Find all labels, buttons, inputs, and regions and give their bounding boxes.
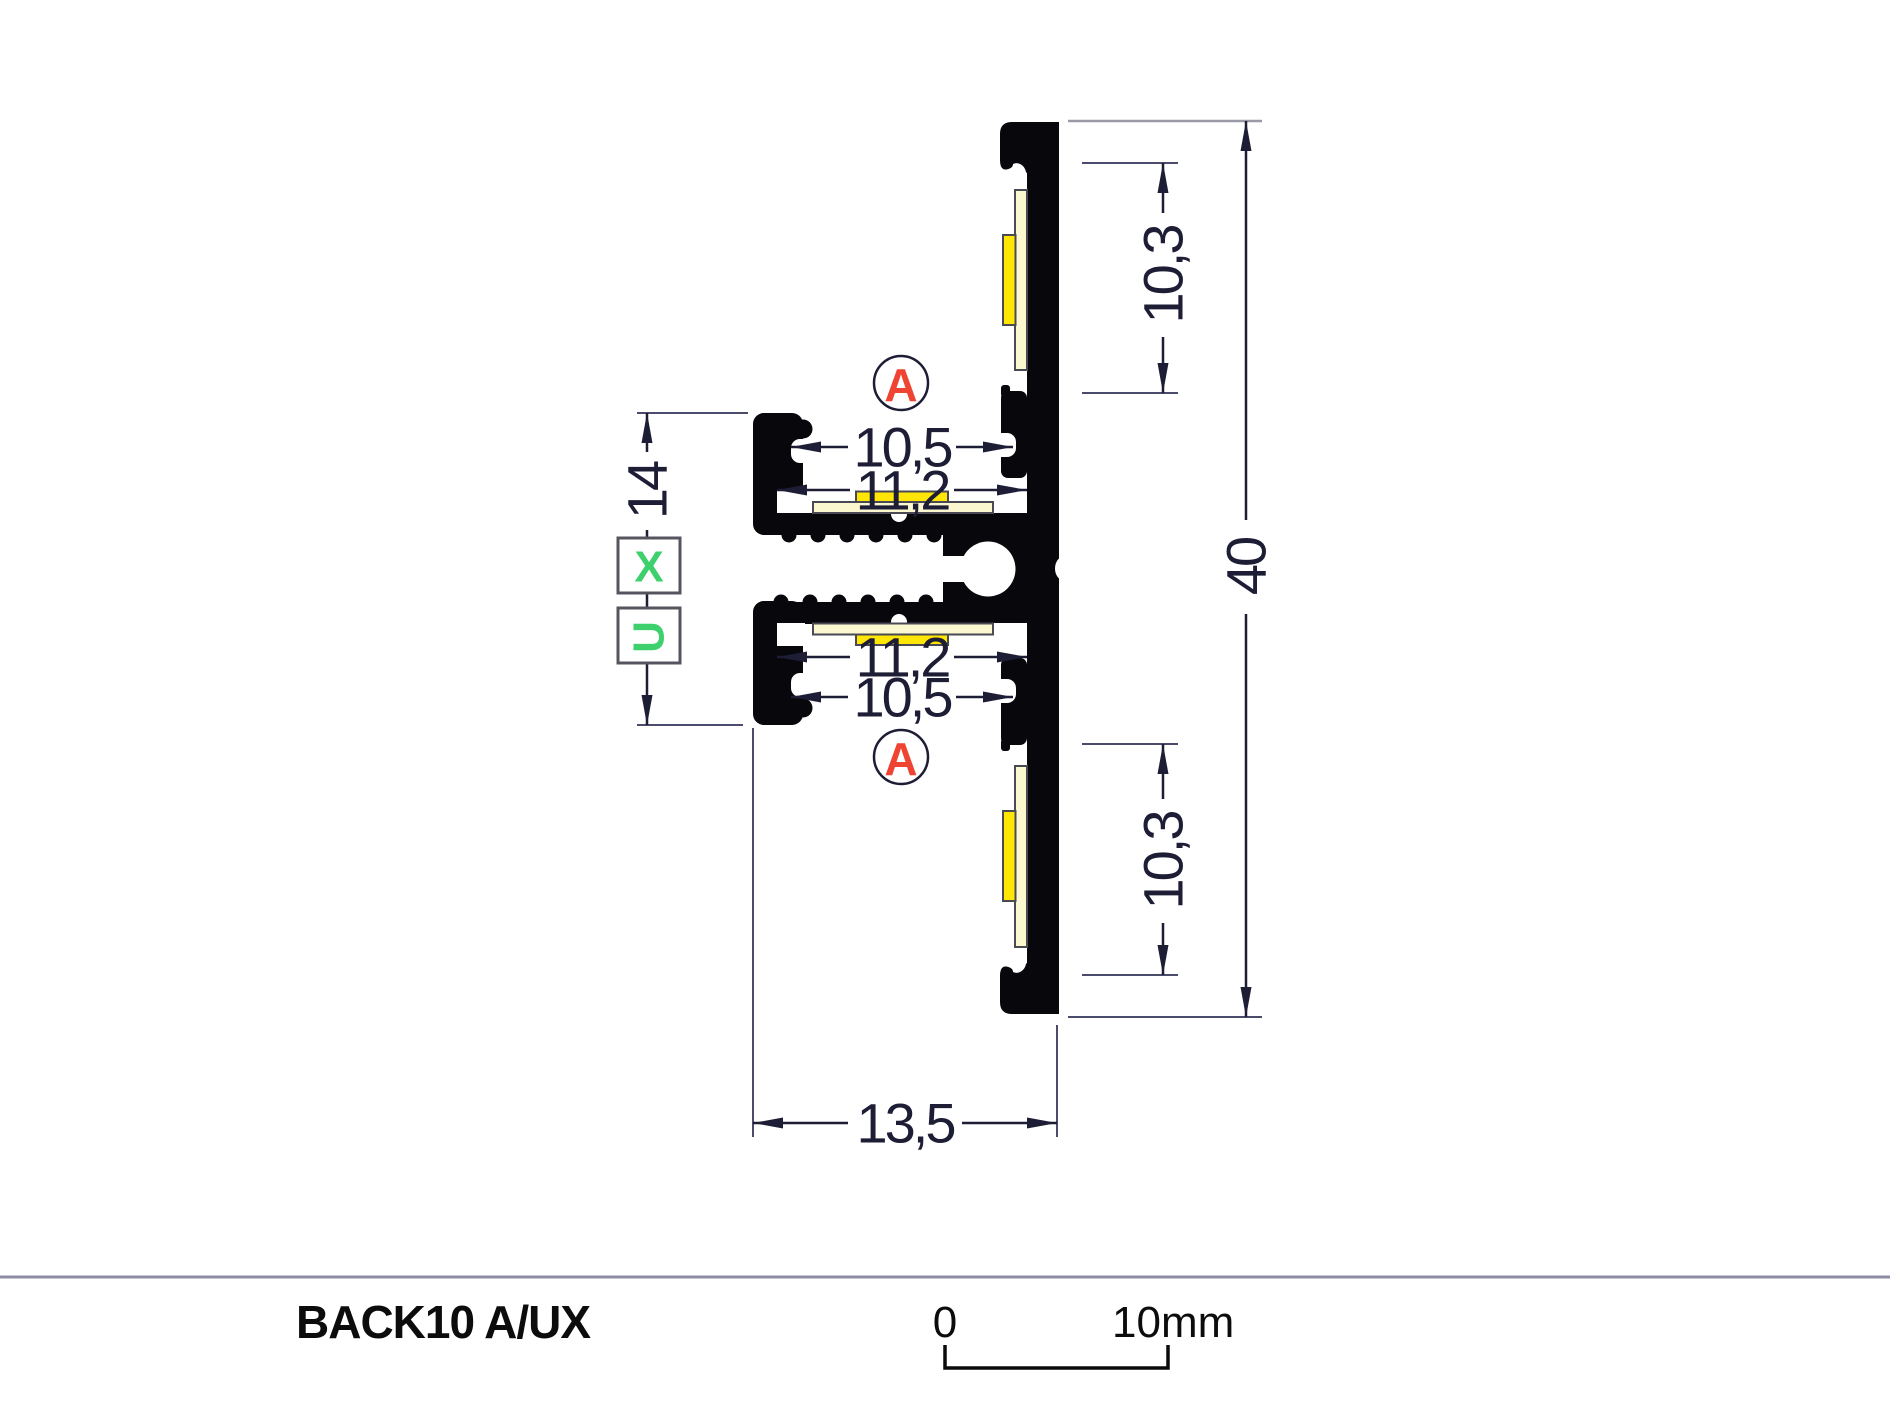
led-chip-top-vertical <box>1003 235 1016 325</box>
dim-led-pocket-bottom: 10,3 <box>1132 812 1195 910</box>
dim-channel-top: 11,2 <box>856 459 950 522</box>
dim-overall-width: 13,5 <box>857 1092 955 1155</box>
screw-chamber-hole <box>961 542 1016 597</box>
dim-opening-bottom: 10,5 <box>854 666 952 729</box>
detail-marker-top: A <box>874 356 928 411</box>
profile-bottom-hook-lip <box>1001 739 1010 751</box>
led-pcb-top-vertical <box>1015 190 1027 370</box>
profile-drawing-canvas: 10,5 11,2 11,2 10,5 13,5 10,3 10,3 40 14… <box>0 0 1890 1418</box>
dim-side-depth: 14 <box>616 461 679 519</box>
variant-marker-u-label: U <box>625 621 674 653</box>
dim-overall-height: 40 <box>1215 538 1278 595</box>
product-title: BACK10 A/UX <box>296 1296 591 1348</box>
dimension-texts: 10,5 11,2 11,2 10,5 13,5 10,3 10,3 40 14 <box>616 226 1278 1155</box>
drawing-page: 10,5 11,2 11,2 10,5 13,5 10,3 10,3 40 14… <box>0 0 1890 1418</box>
profile-top-flange <box>1000 122 1059 173</box>
variant-marker-x: X <box>618 538 680 593</box>
bottom-arm-corner <box>777 623 805 646</box>
profile-bottom-arm-nose <box>794 699 813 718</box>
profile-top-arm-nose <box>794 420 813 439</box>
variant-marker-u: U <box>618 608 680 663</box>
scale-bar: 0 10mm <box>933 1298 1234 1368</box>
led-pcb-bottom-vertical <box>1015 766 1027 947</box>
screw-chamber-throat <box>934 556 966 582</box>
detail-marker-bottom: A <box>874 730 928 785</box>
variant-marker-x-label: X <box>634 543 663 592</box>
led-chip-bottom-vertical <box>1003 811 1016 901</box>
scale-zero-label: 0 <box>933 1298 957 1347</box>
scale-ten-label: 10mm <box>1112 1298 1234 1347</box>
profile-top-hook-lip <box>1001 385 1010 397</box>
profile-bottom-flange <box>1000 963 1059 1014</box>
detail-marker-bottom-label: A <box>884 733 917 785</box>
scale-bar-bracket <box>945 1345 1168 1368</box>
dim-led-pocket-top: 10,3 <box>1132 226 1195 324</box>
spine-back-notch <box>1055 557 1073 581</box>
profile-spine <box>1027 122 1059 1014</box>
detail-marker-top-label: A <box>884 359 917 411</box>
